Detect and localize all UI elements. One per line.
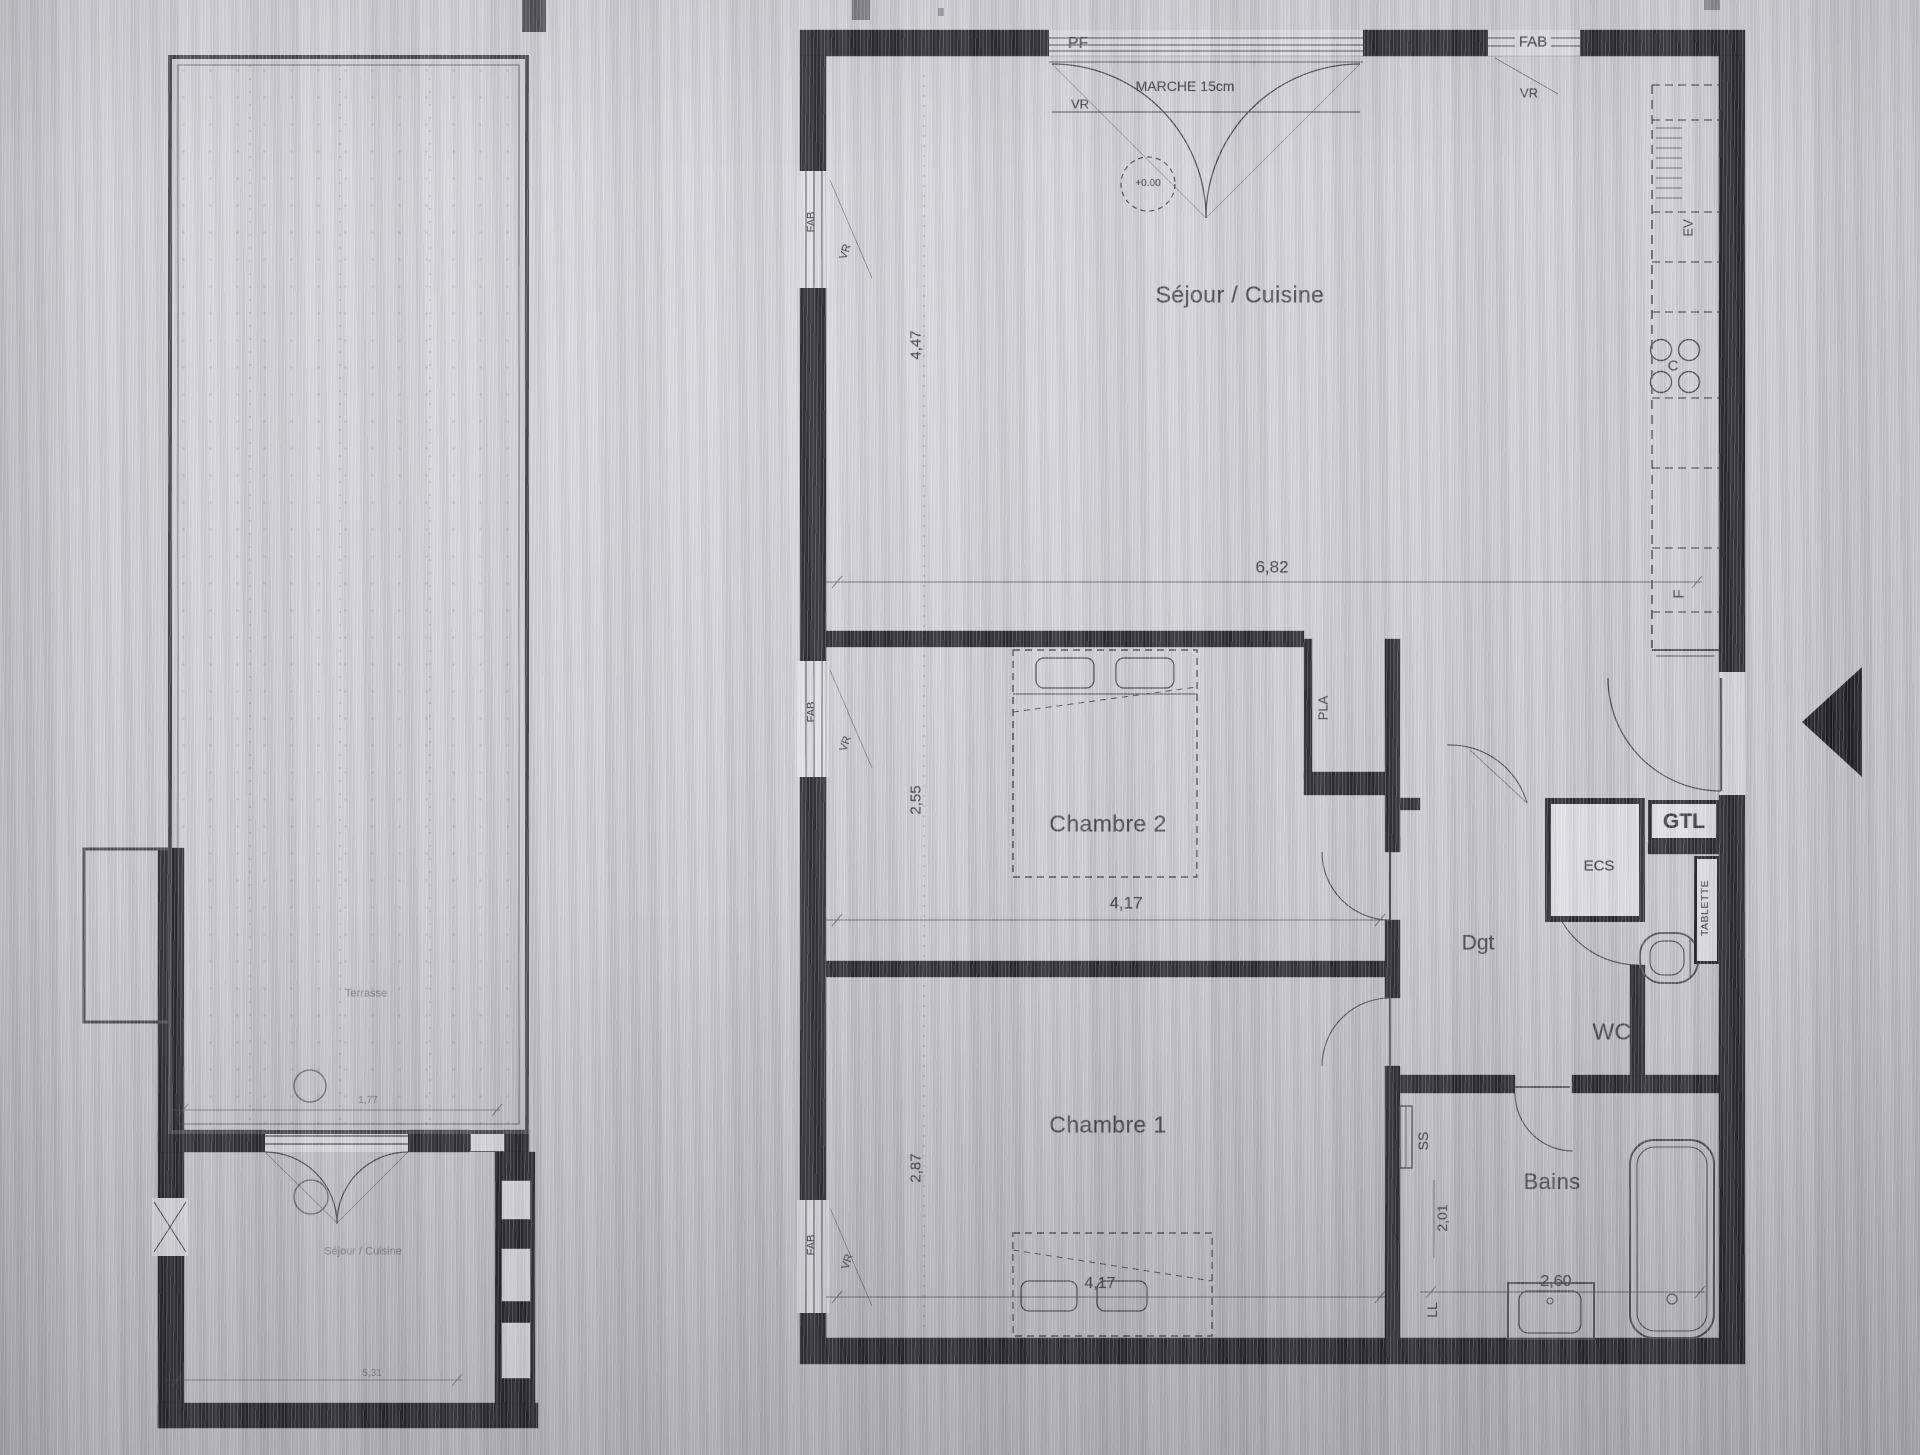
label-fab-top: FAB bbox=[1515, 34, 1551, 51]
appliance-box bbox=[501, 1322, 531, 1379]
dim-left-lower: 5,31 bbox=[362, 1369, 381, 1379]
label-degagement: Dgt bbox=[1462, 933, 1495, 954]
label-wc: WC bbox=[1592, 1021, 1631, 1044]
left-plan-window bbox=[152, 1198, 188, 1256]
dim-sejour-width: 6,82 bbox=[1255, 559, 1288, 576]
label-pf: PF bbox=[1068, 36, 1088, 52]
hall-wall bbox=[1385, 639, 1400, 795]
entrance-opening bbox=[1719, 672, 1745, 795]
label-left-sejour-cuisine: Séjour / Cuisine bbox=[324, 1247, 402, 1258]
left-plan-wall bbox=[158, 1403, 538, 1428]
window-tag-vr: VR bbox=[838, 735, 853, 753]
appliance-box bbox=[501, 1248, 531, 1302]
left-plan-wall bbox=[408, 1130, 470, 1152]
screen-artifact bbox=[938, 8, 944, 16]
wall-left bbox=[800, 288, 826, 661]
label-bains: Bains bbox=[1523, 1171, 1580, 1193]
dim-left-upper: 1,77 bbox=[358, 1096, 377, 1106]
wall-left bbox=[800, 56, 826, 171]
left-plan-window bbox=[470, 1133, 505, 1152]
floor-plan-scene: GTL bbox=[0, 0, 1920, 1455]
window-tag-fab: FAB bbox=[807, 1235, 818, 1256]
screen-artifact bbox=[1704, 0, 1720, 10]
window-tag-fab: FAB bbox=[807, 702, 818, 723]
window-tag-fab: FAB bbox=[807, 212, 818, 233]
terrace-area bbox=[170, 57, 527, 1132]
appliance-box bbox=[501, 1180, 531, 1220]
dim-sejour-height: 4,47 bbox=[909, 330, 924, 359]
label-placard: PLA bbox=[1317, 696, 1330, 721]
label-cuisson: C bbox=[1668, 359, 1679, 374]
label-sejour-cuisine: Séjour / Cuisine bbox=[1156, 284, 1325, 307]
dim-chambre2-height: 2,55 bbox=[909, 785, 924, 814]
label-terrasse: Terrasse bbox=[345, 989, 387, 1000]
hall-wall bbox=[1385, 920, 1400, 998]
bains-wall bbox=[1398, 1075, 1515, 1093]
window-left-chambre1 bbox=[797, 1200, 829, 1313]
wall-bottom bbox=[800, 1338, 1745, 1364]
label-marche: MARCHE 15cm bbox=[1136, 79, 1235, 93]
gtl-box: GTL bbox=[1648, 800, 1720, 842]
screen-artifact bbox=[522, 0, 546, 32]
label-frigo: F bbox=[1672, 589, 1687, 598]
dim-chambre1-height: 2,87 bbox=[909, 1153, 924, 1182]
dim-bains-height: 2,01 bbox=[1435, 1204, 1449, 1231]
wall-right bbox=[1719, 56, 1745, 672]
label-vr-fab: VR bbox=[1520, 87, 1538, 100]
label-level: +0.00 bbox=[1135, 179, 1160, 189]
label-chambre-2: Chambre 2 bbox=[1049, 813, 1166, 836]
closet-wall bbox=[1304, 639, 1312, 779]
screen-artifact bbox=[852, 0, 870, 20]
wall-right bbox=[1719, 795, 1745, 1338]
label-chambre-1: Chambre 1 bbox=[1049, 1114, 1166, 1137]
entrance-arrow-icon bbox=[1802, 667, 1862, 777]
dim-bains-width: 2,60 bbox=[1540, 1274, 1571, 1290]
window-tag-vr: VR bbox=[840, 1253, 855, 1271]
gtl-bar bbox=[1648, 842, 1720, 854]
hall-wall bbox=[1385, 1066, 1400, 1338]
dim-chambre1-width: 4,17 bbox=[1084, 1276, 1115, 1292]
wall-left bbox=[800, 1313, 826, 1338]
left-plan-window bbox=[265, 1130, 408, 1152]
wall-top bbox=[800, 30, 1049, 56]
dim-chambre2-width: 4,17 bbox=[1109, 895, 1142, 912]
wc-wall bbox=[1630, 965, 1645, 1075]
wall-top bbox=[1363, 30, 1488, 56]
bains-wall bbox=[1572, 1075, 1719, 1093]
label-evier: EV bbox=[1682, 219, 1695, 236]
label-vr-pf: VR bbox=[1071, 98, 1089, 111]
label-tablette: TABLETTE bbox=[1700, 880, 1711, 936]
window-tag-vr: VR bbox=[838, 243, 853, 261]
closet-wall bbox=[1304, 772, 1398, 795]
wall-chambre2-chambre1 bbox=[826, 961, 1398, 977]
left-plan-wall bbox=[158, 1130, 265, 1152]
door-pivot bbox=[1390, 837, 1400, 851]
wall-stub bbox=[1398, 798, 1420, 810]
label-ecs: ECS bbox=[1584, 859, 1615, 874]
label-seche-serviettes: SS bbox=[1416, 1132, 1430, 1151]
wall-sejour-chambre2 bbox=[826, 631, 1304, 647]
window-pf bbox=[1049, 30, 1363, 56]
label-lave-linge: LL bbox=[1425, 1302, 1439, 1318]
left-plan-wall bbox=[503, 1130, 529, 1152]
wall-left bbox=[800, 777, 826, 1200]
gtl-label: GTL bbox=[1663, 811, 1705, 832]
wall-top bbox=[1580, 30, 1745, 56]
